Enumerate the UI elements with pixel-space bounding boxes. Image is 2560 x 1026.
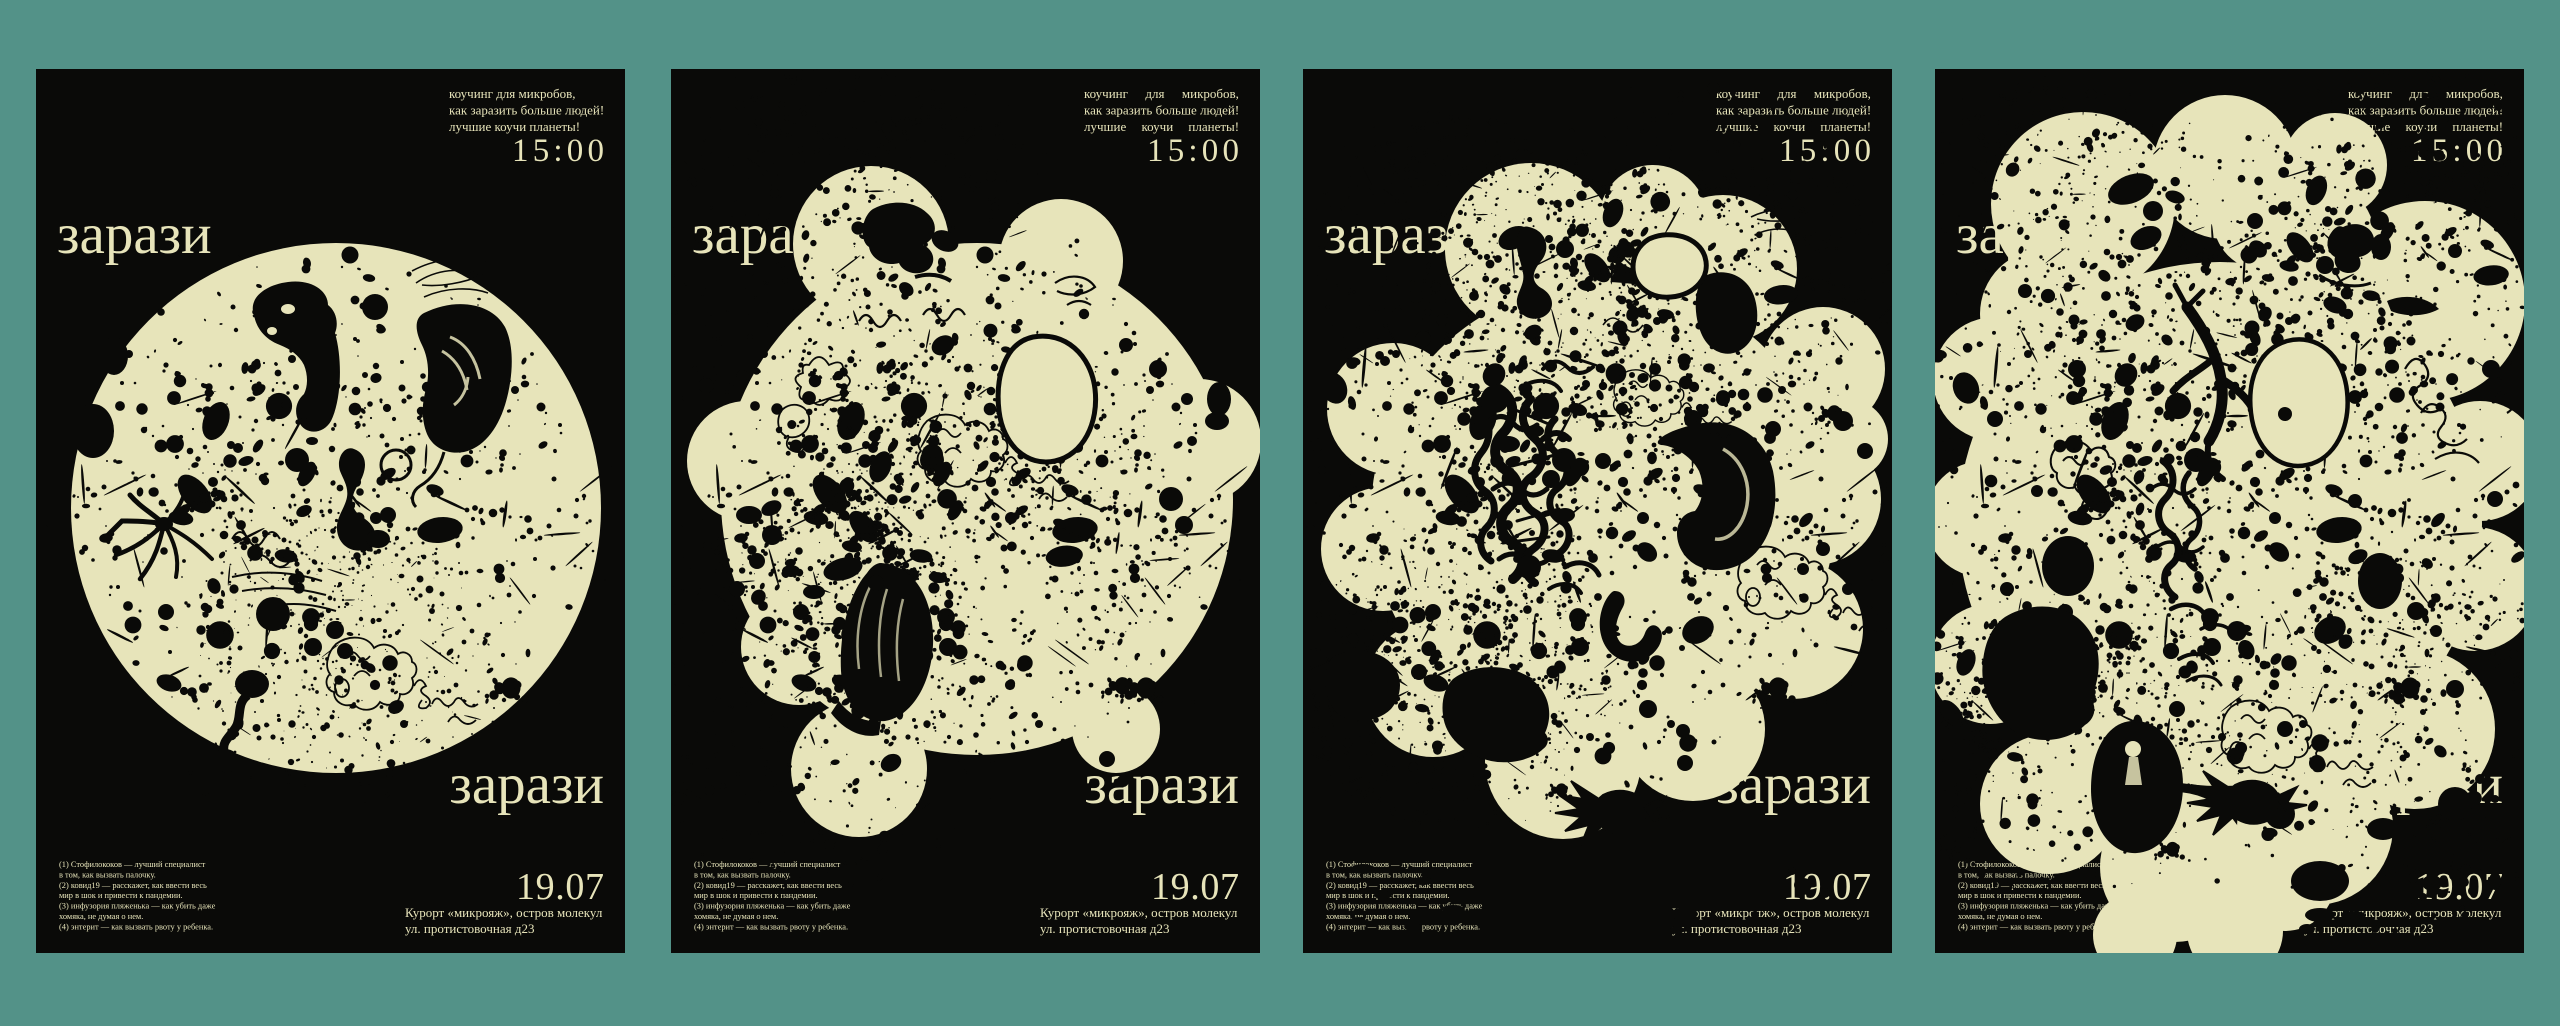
svg-text:хомяка, не думая о нем.: хомяка, не думая о нем. [1326,912,1410,921]
svg-text:Курорт «микрояж», остров молек: Курорт «микрояж», остров молекул [405,905,603,920]
svg-text:ул. протистовочная д23: ул. протистовочная д23 [1040,921,1169,936]
svg-text:(1) Стофилококов — лучший спец: (1) Стофилококов — лучший специалист [1326,860,1473,869]
svg-text:хомяка, не думая о нем.: хомяка, не думая о нем. [694,912,778,921]
svg-text:хомяка, не думая о нем.: хомяка, не думая о нем. [59,912,143,921]
svg-text:15:00: 15:00 [512,133,604,169]
svg-text:Курорт «микрояж», остров молек: Курорт «микрояж», остров молекул [1040,905,1238,920]
svg-text:хомяка, не думая о нем.: хомяка, не думая о нем. [1958,912,2042,921]
svg-text:в том, как вызвать палочку.: в том, как вызвать палочку. [694,870,791,879]
svg-text:зарази: зарази [449,753,604,816]
svg-text:19.07: 19.07 [1151,866,1239,908]
svg-text:ул. протистовочная д23: ул. протистовочная д23 [1672,921,1801,936]
svg-text:(3) инфузория пляженька — как: (3) инфузория пляженька — как убить даже [694,902,851,911]
svg-text:(4) энтерит — как вызвать рвот: (4) энтерит — как вызвать рвоту у ребенк… [694,922,848,931]
svg-text:лучшие коучи планеты!: лучшие коучи планеты! [1084,119,1239,134]
svg-text:15:00: 15:00 [1147,133,1239,169]
svg-text:(4) энтерит — как вызвать рвот: (4) энтерит — как вызвать рвоту у ребенк… [1326,922,1480,931]
svg-text:(1) Стофилококов — лучший спец: (1) Стофилококов — лучший специалист [59,860,206,869]
svg-text:ул. протистовочная д23: ул. протистовочная д23 [405,921,534,936]
svg-text:лучшие коучи планеты!: лучшие коучи планеты! [449,119,580,134]
svg-text:лучшие коучи планеты!: лучшие коучи планеты! [1716,119,1871,134]
svg-text:(2) ковид19 — расскажет, как в: (2) ковид19 — расскажет, как ввести весь [59,881,207,890]
svg-text:Курорт «микрояж», остров молек: Курорт «микрояж», остров молекул [1672,905,1870,920]
svg-text:в том, как вызвать палочку.: в том, как вызвать палочку. [1326,870,1423,879]
svg-text:мир в шок и привести к пандеми: мир в шок и привести к пандемии. [694,891,818,900]
svg-text:коучинг для микробов,: коучинг для микробов, [1716,86,1871,101]
svg-text:как заразить больше людей!: как заразить больше людей! [1084,102,1239,117]
svg-text:коучинг для микробов,: коучинг для микробов, [449,86,576,101]
svg-text:(1) Стофилококов — лучший спец: (1) Стофилококов — лучший специалист [694,860,841,869]
svg-text:ул. протистовочная д23: ул. протистовочная д23 [2304,921,2433,936]
svg-text:как заразить больше людей!: как заразить больше людей! [449,102,604,117]
svg-text:(4) энтерит — как вызвать рвот: (4) энтерит — как вызвать рвоту у ребенк… [1958,922,2112,931]
svg-text:19.07: 19.07 [516,866,604,908]
svg-text:(3) инфузория пляженька — как: (3) инфузория пляженька — как убить даже [59,902,216,911]
svg-text:мир в шок и привести к пандеми: мир в шок и привести к пандемии. [1958,891,2082,900]
svg-text:(2) ковид19 — расскажет, как в: (2) ковид19 — расскажет, как ввести весь [1958,881,2106,890]
svg-text:(2) ковид19 — расскажет, как в: (2) ковид19 — расскажет, как ввести весь [1326,881,1474,890]
svg-text:(4) энтерит — как вызвать рвот: (4) энтерит — как вызвать рвоту у ребенк… [59,922,213,931]
svg-text:как заразить больше людей!: как заразить больше людей! [2348,102,2503,117]
svg-text:как заразить больше людей!: как заразить больше людей! [1716,102,1871,117]
svg-text:мир в шок и привести к пандеми: мир в шок и привести к пандемии. [59,891,183,900]
svg-text:(3) инфузория пляженька — как: (3) инфузория пляженька — как убить даже [1958,902,2115,911]
svg-text:(2) ковид19 — расскажет, как в: (2) ковид19 — расскажет, как ввести весь [694,881,842,890]
svg-text:коучинг для микробов,: коучинг для микробов, [1084,86,1239,101]
svg-text:зарази: зарази [57,203,212,266]
svg-text:15:00: 15:00 [1779,133,1871,169]
svg-text:в том, как вызвать палочку.: в том, как вызвать палочку. [59,870,156,879]
